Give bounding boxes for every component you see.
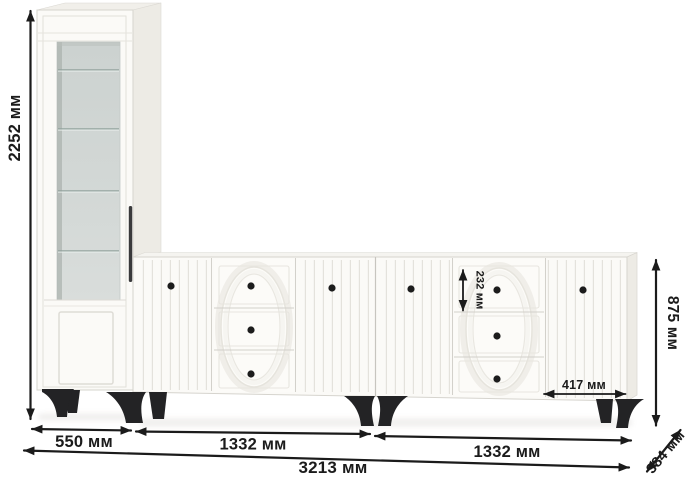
drawer-knob	[247, 282, 254, 289]
door-handle	[129, 206, 132, 282]
furniture-dimension-diagram: 2252 мм 550 мм 1332 мм 1332 мм 3213 мм 3…	[0, 0, 700, 482]
glass-inner-shadow-top	[57, 42, 120, 46]
label-sideboard-height: 875 мм	[664, 296, 681, 350]
glass-shelf	[58, 190, 119, 192]
drawer-knob	[493, 332, 500, 339]
sideboard1-left-door	[136, 260, 210, 390]
sideboard-top-surface	[133, 253, 637, 258]
cabinet-side-panel	[133, 3, 161, 257]
drawer-knob	[493, 375, 500, 382]
dim-line-right-sideboard-width	[375, 436, 631, 441]
glass-inner-shadow-left	[57, 42, 62, 300]
sideboard1-right-door	[297, 260, 371, 392]
label-right-sideboard-width: 1332 мм	[473, 443, 540, 461]
glass-shelf	[58, 128, 119, 130]
glass-door-panel	[57, 42, 120, 300]
glass-shelf	[58, 69, 119, 71]
glass-shelf-highlight	[58, 192, 119, 193]
diagram-canvas: 2252 мм 550 мм 1332 мм 1332 мм 3213 мм 3…	[0, 0, 700, 482]
drawer-knob	[493, 286, 500, 293]
sideboard2-left-door	[378, 260, 450, 394]
door-knob	[167, 282, 174, 289]
label-depth: 384 мм	[643, 428, 688, 477]
label-left-sideboard-width: 1332 мм	[219, 436, 286, 454]
glass-shelf-highlight	[58, 252, 119, 253]
door-knob	[407, 285, 414, 292]
drawer-panel	[454, 259, 544, 396]
dim-line-cabinet-width	[32, 429, 131, 431]
sideboard2-drawers	[454, 259, 544, 396]
label-door-width: 417 мм	[562, 378, 606, 392]
glass-shelf-highlight	[58, 71, 119, 72]
door-knob	[328, 284, 335, 291]
glass-shelf	[58, 250, 119, 252]
door-knob	[579, 286, 586, 293]
sideboard-leg	[149, 392, 167, 419]
label-total-width: 3213 мм	[298, 458, 367, 477]
label-cabinet-width: 550 мм	[55, 433, 113, 451]
label-top-drawer-height: 232 мм	[474, 271, 486, 310]
drawer-knob	[247, 326, 254, 333]
sideboard-side-panel	[627, 253, 637, 402]
glass-shelf-highlight	[58, 130, 119, 131]
dim-line-left-sideboard-width	[136, 432, 370, 435]
drawer-knob	[247, 370, 254, 377]
label-total-height: 2252 мм	[6, 94, 24, 161]
